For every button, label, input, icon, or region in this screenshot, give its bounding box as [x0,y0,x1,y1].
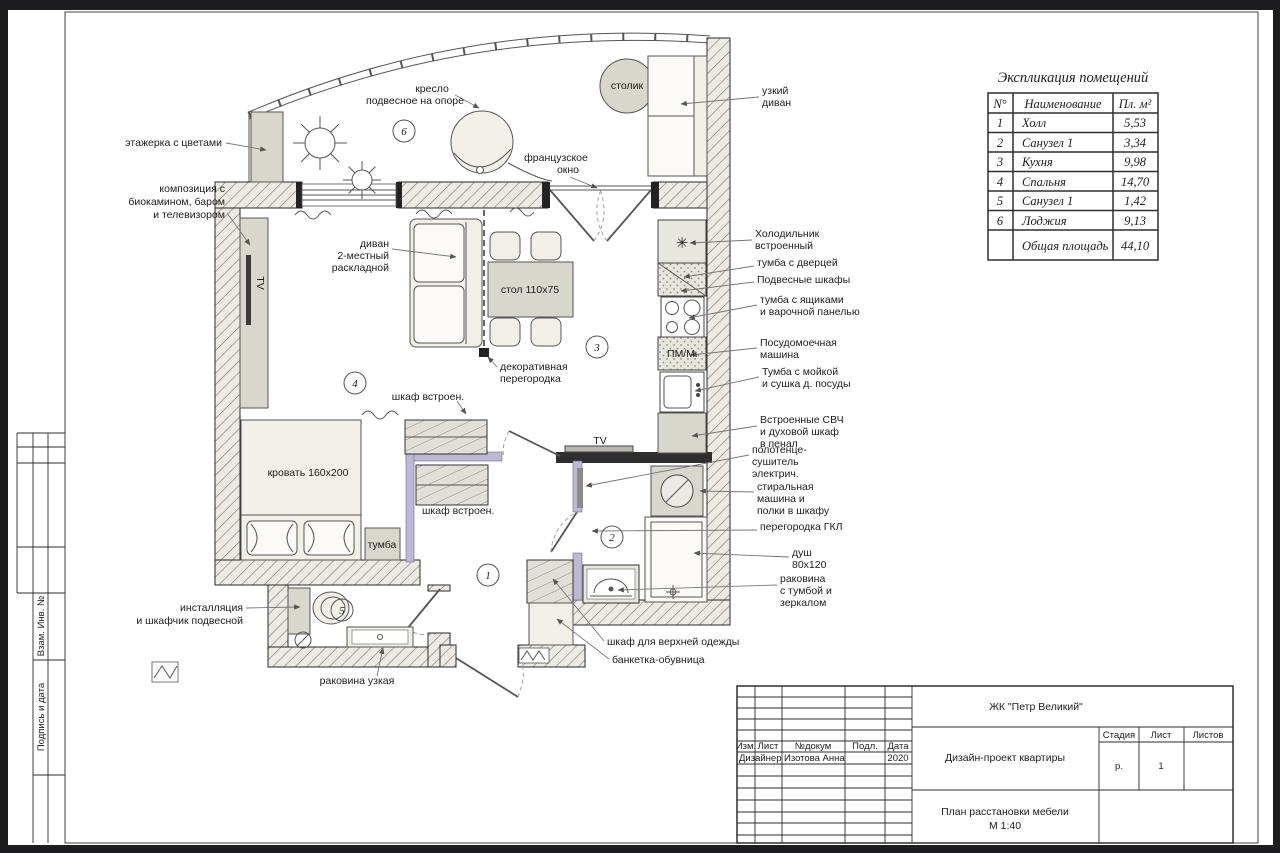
label-washer-3: полки в шкафу [757,505,830,517]
svg-text:Холл: Холл [1021,116,1047,130]
label-dishwasher-1: Посудомоечная [760,337,837,349]
bath-vanity-sink [583,565,639,603]
label-narrow-sofa-2: диван [762,97,791,109]
margin-label-vzam: Взам. Инв. № [36,596,47,656]
narrow-basin [347,627,413,647]
floor-plan-sheet: Взам. Инв. № Подпись и дата [0,0,1280,853]
tb-sheet-value: 1 [1158,761,1163,772]
label-composition-2: биокамином, баром [128,196,225,208]
label-vanity-3: зеркалом [780,597,826,609]
label-towel-dryer-2: сушитель [752,456,799,468]
schedule-title: Экспликация помещений [998,70,1149,86]
svg-text:Санузел 1: Санузел 1 [1022,194,1073,208]
label-towel-dryer-3: электрич. [752,468,799,480]
label-oven-2: и духовой шкаф [760,426,839,438]
toilet-installation [288,588,310,634]
bed [241,420,361,560]
washing-machine [651,466,703,516]
tb-col-dokum: №докум [795,741,831,752]
label-dining-table: стол 110x75 [501,284,559,296]
shoe-bench [529,603,573,645]
label-vanity-1: раковина [780,573,825,585]
tb-stage-value: р. [1115,761,1123,772]
label-sofa-2: 2-местный [337,250,389,262]
label-hanging-chair-2: подвесное на опоре [366,95,464,107]
label-installation-1: инсталляция [180,602,243,614]
window [302,184,396,206]
svg-text:3,34: 3,34 [1123,136,1146,150]
margin-label-podpis: Подпись и дата [36,682,47,751]
svg-text:3: 3 [996,155,1003,169]
label-washer-2: машина и [757,493,805,505]
label-french-window-2: окно [557,164,579,176]
svg-text:6: 6 [997,214,1004,228]
label-installation-2: и шкафчик подвесной [136,615,243,627]
label-dishwasher-tag: ПМ/М [667,348,695,360]
label-composition-3: и телевизором [153,209,225,221]
label-towel-dryer-1: полотенце- [752,444,807,456]
svg-text:Кухня: Кухня [1021,155,1053,169]
label-gkl-partition: перегородка ГКЛ [760,521,843,533]
svg-text:Общая площадь: Общая площадь [1022,239,1109,253]
label-composition-1: композиция с [159,183,225,195]
label-narrow-basin: раковина узкая [320,675,395,687]
tb-year: 2020 [887,753,908,764]
towel-dryer [577,468,583,508]
tb-sheets-header: Листов [1193,730,1224,741]
label-shower-2: 80x120 [792,559,827,571]
threshold-mark [519,648,549,663]
sofa [410,219,482,347]
plant-stand [251,112,283,182]
label-wardrobe-top: шкаф встроен. [392,391,464,403]
label-shoe-bench: банкетка-обувница [612,654,705,666]
snowflake-icon: ✳ [676,236,689,252]
label-tv-living: TV [254,276,266,289]
coat-wardrobe [527,560,573,603]
schedule-header-num: N° [992,97,1006,111]
svg-text:4: 4 [352,378,358,390]
label-hanging-chair-1: кресло [415,83,449,95]
kitchen-run: ✳ [658,220,706,453]
builtin-wardrobe-bottom [416,465,488,505]
svg-text:9,98: 9,98 [1124,155,1147,169]
label-sofa-3: раскладной [332,262,389,274]
schedule-total-row: Общая площадь 44,10 [1022,239,1150,253]
label-sink-cabinet-1: Тумба с мойкой [762,366,838,378]
svg-text:14,70: 14,70 [1121,175,1150,189]
bath-top-wall [562,452,712,463]
svg-text:Санузел 1: Санузел 1 [1022,136,1073,150]
svg-text:4: 4 [997,175,1003,189]
tb-designer-role: Дизайнер [739,753,782,764]
label-hob-cabinet-2: и варочной панелью [760,306,860,318]
schedule-header-area: Пл. м² [1118,97,1152,111]
label-dishwasher-2: машина [760,349,799,361]
tb-col-izm: Изм. [736,741,756,752]
label-nightstand: тумба [368,539,397,551]
label-shower-1: душ [792,547,812,559]
svg-text:5: 5 [997,194,1003,208]
svg-text:1: 1 [997,116,1003,130]
label-wardrobe-bottom: шкаф встроен. [422,505,494,517]
label-french-window-1: французское [524,152,588,164]
exterior-mark [152,662,178,682]
svg-text:5,53: 5,53 [1124,116,1146,130]
svg-text:1,42: 1,42 [1124,194,1146,208]
tb-designer-name: Изотова Анна [784,753,845,764]
svg-text:Лоджия: Лоджия [1021,214,1067,228]
label-plant-stand: этажерка с цветами [125,137,222,149]
tb-col-list: Лист [758,741,779,752]
label-oven-1: Встроенные СВЧ [760,414,844,426]
builtin-wardrobe-top [405,420,487,454]
tb-stage-header: Стадия [1103,730,1135,741]
label-sink-cabinet-2: и сушка д. посуды [762,378,851,390]
tb-sheet-title: План расстановки мебели [941,806,1069,818]
svg-text:6: 6 [401,126,407,138]
label-bed: кровать 160x200 [268,467,349,479]
tb-sheet-header: Лист [1151,730,1172,741]
narrow-sofa [648,56,707,176]
tb-col-podp: Подл. [852,741,878,752]
hob [661,297,704,337]
tv-biofireplace-unit [240,218,268,408]
tb-doc-title: Дизайн-проект квартиры [945,752,1065,764]
schedule-header-name: Наименование [1023,97,1102,111]
label-vanity-2: с тумбой и [780,585,832,597]
label-narrow-sofa-1: узкий [762,85,789,97]
svg-text:Спальня: Спальня [1022,175,1066,189]
svg-text:44,10: 44,10 [1121,239,1150,253]
label-sofa-1: диван [360,238,389,250]
label-fridge-2: встроенный [755,240,813,252]
svg-text:9,13: 9,13 [1124,214,1146,228]
tb-scale: М 1:40 [989,820,1021,832]
label-side-table: столик [611,80,644,92]
drawing-sheet-scan: Взам. Инв. № Подпись и дата [0,0,1280,853]
svg-text:5: 5 [339,605,345,617]
tb-col-data: Дата [887,741,909,752]
label-tv-bath: TV [593,435,606,447]
label-hob-cabinet-1: тумба с ящиками [760,294,844,306]
paper-sheet [8,10,1273,845]
kitchen-sink [660,372,704,412]
svg-text:1: 1 [485,570,491,582]
label-fridge-1: Холодильник [755,228,820,240]
oven-microwave-column [658,413,706,453]
label-decor-partition-2: перегородка [500,373,561,385]
tb-project-name: ЖК "Петр Великий" [989,701,1083,713]
svg-text:2: 2 [997,136,1003,150]
label-wall-cabinets: Подвесные шкафы [757,274,850,286]
label-washer-1: стиральная [757,481,814,493]
label-cabinet-door: тумба с дверцей [757,257,838,269]
label-coat-wardrobe: шкаф для верхней одежды [607,636,739,648]
svg-text:2: 2 [609,532,615,544]
label-decor-partition-1: декоративная [500,361,568,373]
svg-text:3: 3 [593,342,600,354]
